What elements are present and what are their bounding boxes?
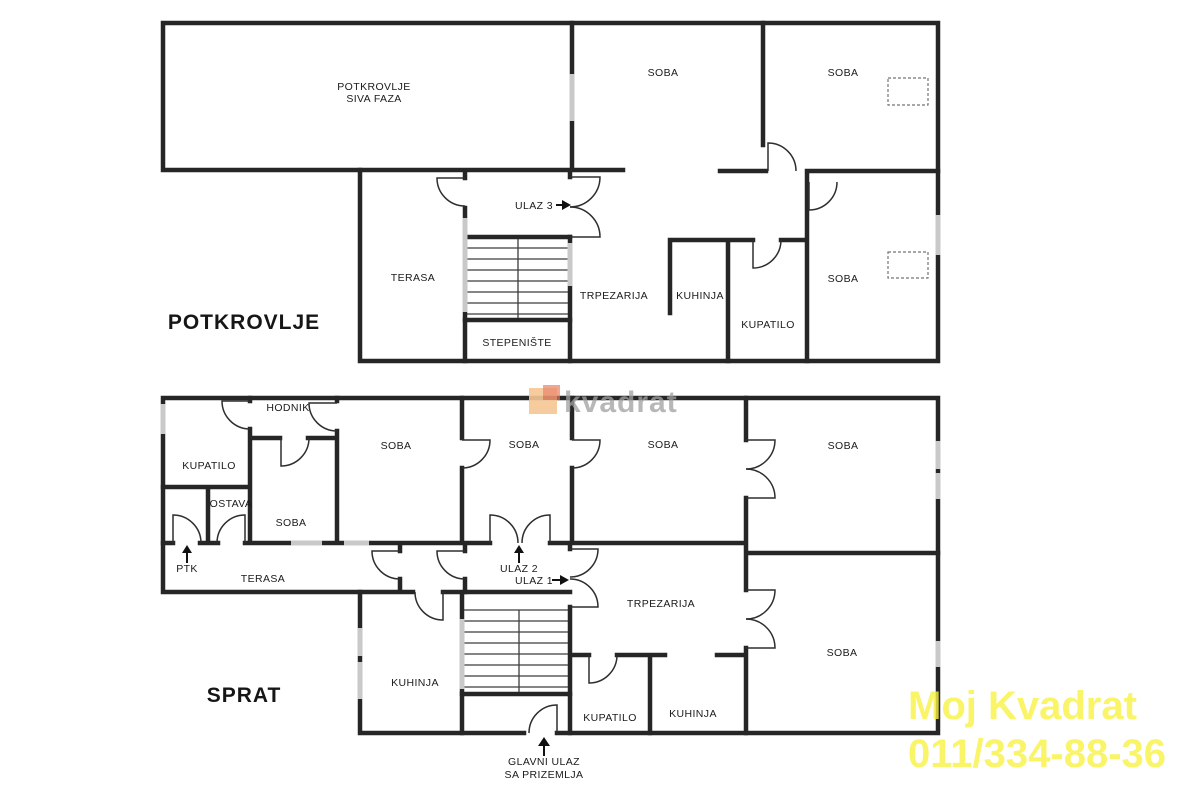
door-arc-soba-6b	[746, 469, 775, 498]
door-arc-ptk	[173, 515, 201, 543]
room-label-soba-4: SOBA	[509, 439, 540, 451]
room-label-ostava: OSTAVA	[210, 498, 253, 510]
room-label-kuhinja-left: KUHINJA	[391, 677, 439, 689]
agency-watermark: Moj Kvadrat 011/334-88-36	[908, 684, 1166, 776]
door-arc-kuhinja-left	[415, 592, 443, 620]
floor-title-potkrovlje: POTKROVLJE	[168, 311, 320, 334]
entrance-ulaz3: ULAZ 3	[515, 200, 571, 212]
door-arc-ulaz2-b	[522, 515, 550, 543]
kvadrat-watermark: kvadrat	[529, 385, 678, 419]
kvadrat-logo-icon	[529, 385, 560, 414]
kvadrat-watermark-text: kvadrat	[564, 386, 678, 419]
room-label-soba-bottom: SOBA	[827, 647, 858, 659]
entrance-label-ulaz3: ULAZ 3	[515, 200, 553, 212]
staircase	[467, 239, 568, 318]
door-arc-soba-bottom-right	[809, 182, 837, 210]
room-label-potkrovlje-siva-faza: POTKROVLJE	[337, 81, 410, 93]
entrance-ptk: PTK	[176, 545, 198, 575]
dashed-fixture	[888, 252, 928, 278]
room-label-kupatilo: KUPATILO	[741, 319, 795, 331]
doors	[437, 143, 837, 268]
entrance-label-glavni-ulaz-2: SA PRIZEMLJA	[505, 769, 584, 781]
door-arc-kupatilo-tl	[222, 401, 250, 429]
agency-phone: 011/334-88-36	[908, 732, 1166, 776]
up-arrow-icon	[182, 545, 192, 563]
room-label-trpezarija-2: TRPEZARIJA	[627, 598, 695, 610]
door-arc-ulaz3-b	[570, 207, 600, 237]
room-label-potkrovlje-siva-faza-2: SIVA FAZA	[346, 93, 401, 105]
door-arc-soba-small	[281, 438, 309, 466]
door-arc-soba-br-a	[746, 590, 775, 619]
room-label-trpezarija: TRPEZARIJA	[580, 290, 648, 302]
door-arc-soba-5	[572, 440, 600, 468]
door-arc-soba-br-b	[746, 619, 775, 648]
room-label-soba-bottom-right: SOBA	[828, 273, 859, 285]
room-label-kupatilo-tl: KUPATILO	[182, 460, 236, 472]
room-label-soba-right: SOBA	[828, 67, 859, 79]
door-arc-soba-top-right	[768, 143, 796, 171]
door-arc-hodnik	[309, 403, 337, 431]
dashed-fixture	[888, 78, 928, 105]
door-arc-vestibule-a	[372, 551, 400, 579]
floor-plan-page: POTKROVLJE SIVA FAZA SOBA SOBA TERASA TR…	[0, 0, 1200, 799]
room-label-soba-3: SOBA	[381, 440, 412, 452]
room-label-soba-small: SOBA	[276, 517, 307, 529]
up-arrow-icon	[538, 737, 550, 756]
floor-plan-canvas: POTKROVLJE SIVA FAZA SOBA SOBA TERASA TR…	[0, 0, 1200, 799]
entrance-ulaz1: ULAZ 1	[515, 575, 569, 587]
room-label-kuhinja-bottom: KUHINJA	[669, 708, 717, 720]
entrance-label-ulaz1: ULAZ 1	[515, 575, 553, 587]
staircase	[464, 610, 568, 692]
door-arc-ulaz1-b	[570, 579, 598, 607]
up-arrow-icon	[514, 545, 524, 563]
door-arc-ulaz2-a	[490, 515, 518, 543]
entrance-ulaz2: ULAZ 2	[500, 545, 538, 575]
room-label-hodnik: HODNIK	[266, 402, 309, 414]
floor-sprat: KUPATILO HODNIK OSTAVA SOBA SOBA SOBA SO…	[163, 398, 938, 781]
door-arc-ostava	[217, 515, 245, 543]
door-arc-soba-6a	[746, 440, 775, 469]
agency-name: Moj Kvadrat	[908, 684, 1137, 728]
right-arrow-icon	[556, 200, 571, 210]
door-arc-glavni-ulaz	[529, 705, 557, 733]
entrance-label-glavni-ulaz: GLAVNI ULAZ	[508, 756, 580, 768]
room-label-terasa-2: TERASA	[241, 573, 285, 585]
outer-walls	[163, 398, 938, 733]
floor-title-sprat: SPRAT	[207, 684, 282, 707]
door-arc-vestibule-b	[437, 551, 465, 579]
room-label-terasa: TERASA	[391, 272, 435, 284]
door-arc-kupatilo-bottom	[589, 655, 617, 683]
room-label-soba-6: SOBA	[828, 440, 859, 452]
room-label-soba-mid: SOBA	[648, 67, 679, 79]
door-arc-kupatilo	[753, 240, 781, 268]
entrance-label-ulaz2: ULAZ 2	[500, 563, 538, 575]
door-arc-terasa	[437, 178, 465, 206]
door-arc-ulaz1-a	[570, 549, 598, 577]
room-label-kuhinja: KUHINJA	[676, 290, 724, 302]
entrance-glavni-ulaz: GLAVNI ULAZ SA PRIZEMLJA	[505, 737, 584, 781]
entrance-label-ptk: PTK	[176, 563, 198, 575]
room-label-stepeniste: STEPENIŠTE	[482, 336, 551, 349]
windows	[465, 74, 938, 312]
floor-potkrovlje: POTKROVLJE SIVA FAZA SOBA SOBA TERASA TR…	[163, 23, 938, 361]
door-arc-soba-4	[462, 440, 490, 468]
interior-walls	[163, 398, 938, 733]
right-arrow-icon	[552, 575, 569, 585]
door-arc-ulaz3-a	[570, 177, 600, 207]
room-label-soba-5: SOBA	[648, 439, 679, 451]
room-label-kupatilo-bottom: KUPATILO	[583, 712, 637, 724]
